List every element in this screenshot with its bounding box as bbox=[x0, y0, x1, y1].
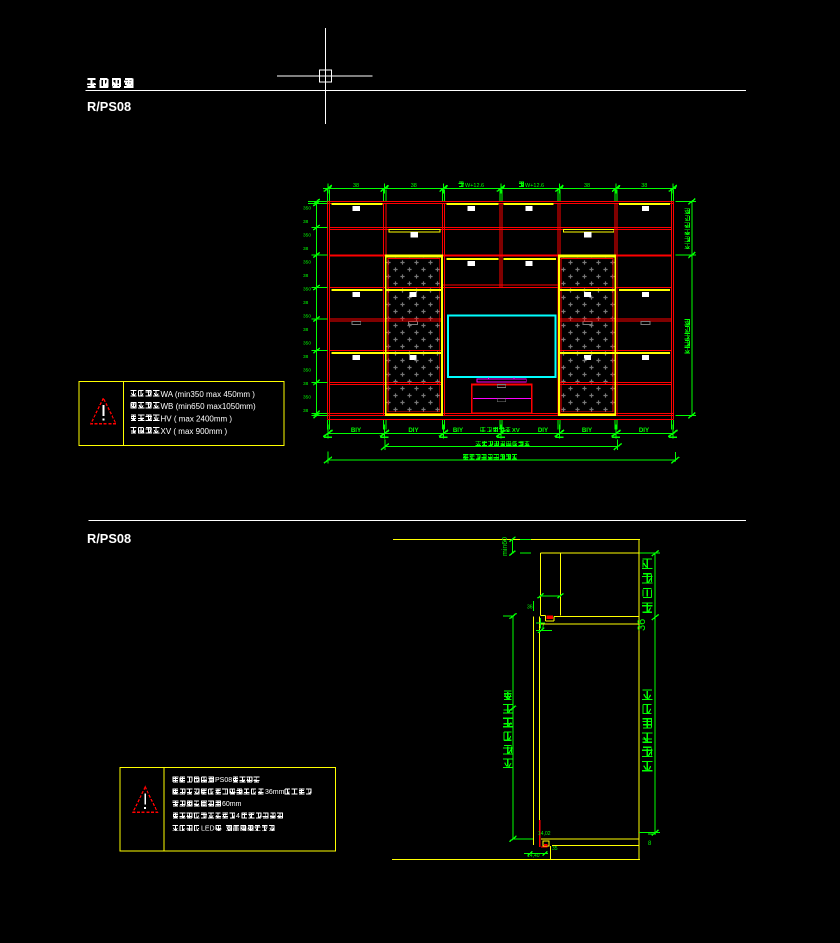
svg-text:350: 350 bbox=[303, 341, 311, 347]
svg-text:XV ( max 900mm ): XV ( max 900mm ) bbox=[161, 427, 228, 436]
svg-text:38: 38 bbox=[303, 300, 309, 306]
svg-text:38: 38 bbox=[353, 183, 359, 189]
svg-text:350: 350 bbox=[303, 314, 311, 320]
svg-text:350: 350 bbox=[303, 233, 311, 239]
svg-text:36: 36 bbox=[636, 619, 648, 631]
svg-text:38: 38 bbox=[584, 183, 590, 189]
svg-text:W+12.6: W+12.6 bbox=[465, 183, 484, 189]
svg-text:W+12.6: W+12.6 bbox=[525, 183, 544, 189]
svg-text:350: 350 bbox=[303, 206, 311, 212]
svg-text:WB (min650 max1050mm): WB (min650 max1050mm) bbox=[161, 402, 256, 411]
svg-text:HV ( max 2400mm ): HV ( max 2400mm ) bbox=[161, 414, 233, 423]
svg-text:38: 38 bbox=[641, 183, 647, 189]
svg-text:LED: LED bbox=[201, 826, 215, 833]
svg-text:38: 38 bbox=[411, 183, 417, 189]
svg-text:BIY: BIY bbox=[351, 427, 362, 434]
svg-text:60mm: 60mm bbox=[222, 801, 242, 808]
svg-text:DIY: DIY bbox=[538, 427, 549, 434]
svg-text:BIY: BIY bbox=[453, 427, 464, 434]
svg-text:38: 38 bbox=[303, 327, 309, 333]
svg-text:14,02: 14,02 bbox=[538, 831, 551, 837]
svg-text:38: 38 bbox=[303, 273, 309, 279]
svg-text:36: 36 bbox=[527, 605, 533, 611]
svg-text:XV: XV bbox=[512, 428, 520, 434]
svg-text:350: 350 bbox=[303, 368, 311, 374]
svg-text:R/PS08: R/PS08 bbox=[87, 531, 131, 546]
svg-text:DIY: DIY bbox=[408, 427, 419, 434]
svg-text:38: 38 bbox=[303, 246, 309, 252]
svg-text:38: 38 bbox=[303, 381, 309, 387]
svg-text:DIY: DIY bbox=[639, 427, 650, 434]
svg-text:14: 14 bbox=[539, 625, 545, 631]
svg-text:350: 350 bbox=[303, 260, 311, 266]
svg-text:min60: min60 bbox=[502, 537, 509, 556]
svg-text:38: 38 bbox=[303, 354, 309, 360]
svg-text:38: 38 bbox=[303, 408, 309, 414]
svg-text:BIY: BIY bbox=[582, 427, 593, 434]
svg-text:WA (min350 max 450mm ): WA (min350 max 450mm ) bbox=[161, 390, 256, 399]
svg-text:35: 35 bbox=[552, 846, 558, 852]
svg-text:350: 350 bbox=[303, 395, 311, 401]
svg-text:350: 350 bbox=[303, 287, 311, 293]
svg-text:38: 38 bbox=[303, 219, 309, 225]
svg-text:36mm: 36mm bbox=[265, 789, 285, 796]
svg-text:R/PS08: R/PS08 bbox=[87, 99, 131, 114]
svg-text:4: 4 bbox=[236, 813, 240, 820]
svg-text:PS08: PS08 bbox=[215, 777, 232, 784]
